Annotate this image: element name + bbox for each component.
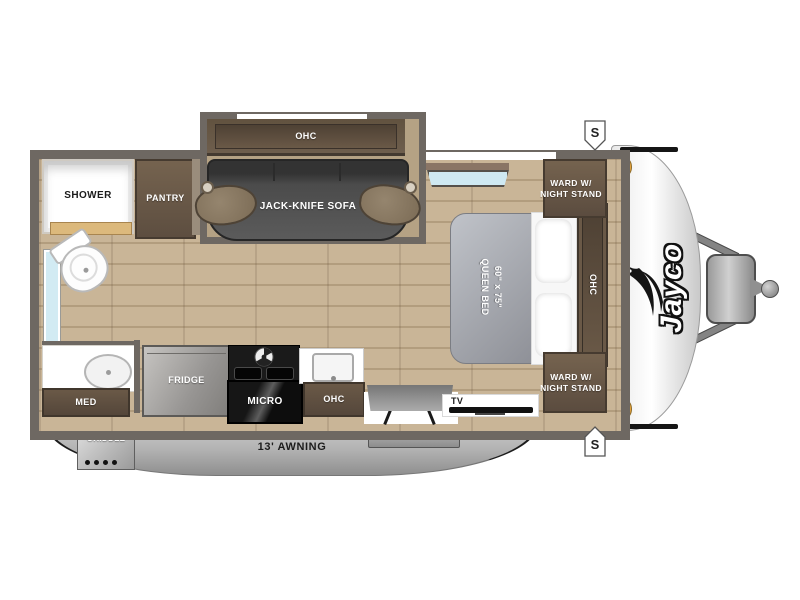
pantry-label: PANTRY (146, 193, 184, 204)
faucet-icon (106, 370, 111, 375)
knob-icon (112, 460, 117, 465)
slide-ohc-label: OHC (295, 131, 316, 142)
fridge-label: FRIDGE (168, 375, 204, 386)
entry-door (367, 385, 453, 411)
knob-icon (103, 460, 108, 465)
kitchen-ohc-label: OHC (323, 394, 344, 405)
armrest-pivot (201, 181, 214, 194)
microwave: MICRO (227, 380, 303, 424)
tv-label: TV (451, 396, 463, 407)
pillow (535, 293, 572, 357)
kitchen-ohc-cabinet: OHC (303, 382, 365, 417)
bedroom-window (427, 170, 509, 187)
vanity-counter (42, 345, 136, 392)
burner-icon (234, 367, 262, 380)
knob-icon (94, 460, 99, 465)
front-shelf (420, 152, 556, 160)
speaker-marker-bottom: S (583, 425, 607, 457)
bedroom-window-frame (423, 163, 509, 170)
bed-type-label: QUEEN BED (479, 258, 490, 315)
knob-icon (85, 460, 90, 465)
front-ohc-cabinet: OHC (577, 203, 608, 367)
wardrobe-label: WARD W/ NIGHT STAND (537, 178, 605, 199)
cooktop (228, 345, 300, 382)
trailer-floorplan: 13' AWNING GRIDDLE SHOWER (0, 0, 800, 600)
queen-bed-bedding (531, 212, 577, 365)
burner-icon (266, 367, 294, 380)
wardrobe-nightstand-top: WARD W/ NIGHT STAND (543, 159, 607, 218)
kitchen-sink (312, 353, 354, 382)
faucet-icon (331, 376, 336, 381)
interior-wall (134, 340, 140, 413)
sofa-slideout: OHC JACK-KNIFE SOFA (200, 112, 426, 244)
speaker-marker-top: S (583, 120, 607, 152)
vanity-sink (84, 354, 132, 390)
sofa-label: JACK-KNIFE SOFA (260, 201, 357, 214)
bed-label: 60" x 75" QUEEN BED (476, 227, 506, 347)
hitch-ball (761, 280, 779, 298)
pillow (535, 219, 572, 283)
door-hinge (383, 410, 391, 425)
pantry-cabinet: PANTRY (135, 159, 196, 239)
med-label: MED (75, 397, 96, 408)
armrest-pivot (404, 181, 417, 194)
micro-label: MICRO (247, 396, 282, 409)
slide-ohc-cabinet: OHC (207, 119, 405, 156)
tv-shelf: TV (442, 394, 539, 417)
tv-stand (475, 413, 505, 415)
fridge: FRIDGE (142, 345, 231, 417)
vent-fan-icon (253, 346, 275, 368)
kitchen-counter (299, 348, 364, 384)
griddle-knobs (85, 460, 117, 465)
brand-text: Jayco (655, 243, 689, 333)
front-ohc-label: OHC (587, 274, 598, 295)
propane-tank-cover (706, 254, 756, 324)
door-hinge (427, 410, 435, 425)
wardrobe-nightstand-bottom: WARD W/ NIGHT STAND (543, 352, 607, 413)
speaker-letter: S (591, 437, 600, 452)
shower-label: SHOWER (64, 190, 111, 203)
medicine-cabinet: MED (42, 388, 130, 417)
bed-size-label: 60" x 75" (492, 266, 503, 308)
wardrobe-label: WARD W/ NIGHT STAND (537, 372, 605, 393)
speaker-letter: S (591, 125, 600, 140)
